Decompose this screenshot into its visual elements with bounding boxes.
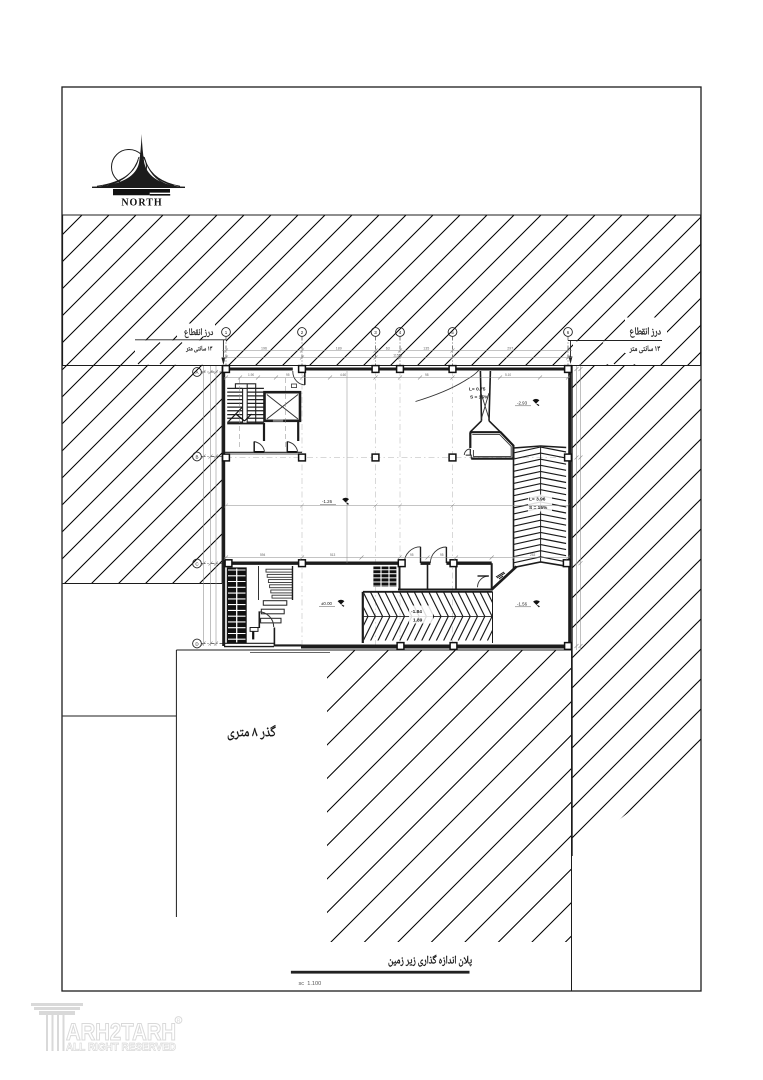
svg-text:-1.56: -1.56 [517, 602, 528, 607]
svg-text:S = 15%: S = 15% [529, 505, 548, 511]
svg-text:135: 135 [423, 347, 429, 351]
svg-text:L= 0.75: L= 0.75 [469, 387, 486, 393]
svg-text:1155: 1155 [393, 354, 401, 358]
svg-text:95: 95 [410, 553, 414, 557]
svg-text:196: 196 [261, 347, 267, 351]
svg-text:A: A [195, 370, 198, 375]
svg-text:-1.84: -1.84 [411, 609, 422, 615]
svg-text:594: 594 [260, 553, 266, 557]
svg-text:B: B [195, 455, 198, 460]
svg-text:4.60: 4.60 [340, 373, 346, 377]
svg-text:sc 1.100: sc 1.100 [299, 981, 322, 987]
svg-text:95: 95 [286, 373, 290, 377]
svg-text:5.10: 5.10 [505, 373, 511, 377]
svg-text:R: R [177, 1018, 181, 1024]
svg-text:253: 253 [530, 553, 536, 557]
svg-text:L= 3.96: L= 3.96 [529, 497, 546, 503]
svg-text:1.90: 1.90 [248, 373, 254, 377]
svg-text:1.89: 1.89 [413, 618, 423, 624]
svg-text:513: 513 [330, 553, 336, 557]
svg-text:-2.93: -2.93 [517, 401, 528, 406]
svg-text:189: 189 [336, 347, 342, 351]
svg-text:98: 98 [425, 373, 429, 377]
svg-text:NORTH: NORTH [121, 198, 162, 209]
svg-text:±0.00: ±0.00 [321, 601, 333, 606]
svg-text:63: 63 [386, 347, 390, 351]
svg-text:95: 95 [440, 553, 444, 557]
svg-text:S = 15%: S = 15% [470, 395, 489, 401]
svg-text:ALL RIGHT RESERVED: ALL RIGHT RESERVED [66, 1042, 176, 1054]
svg-text:-1.26: -1.26 [322, 499, 333, 504]
svg-text:297: 297 [507, 347, 513, 351]
